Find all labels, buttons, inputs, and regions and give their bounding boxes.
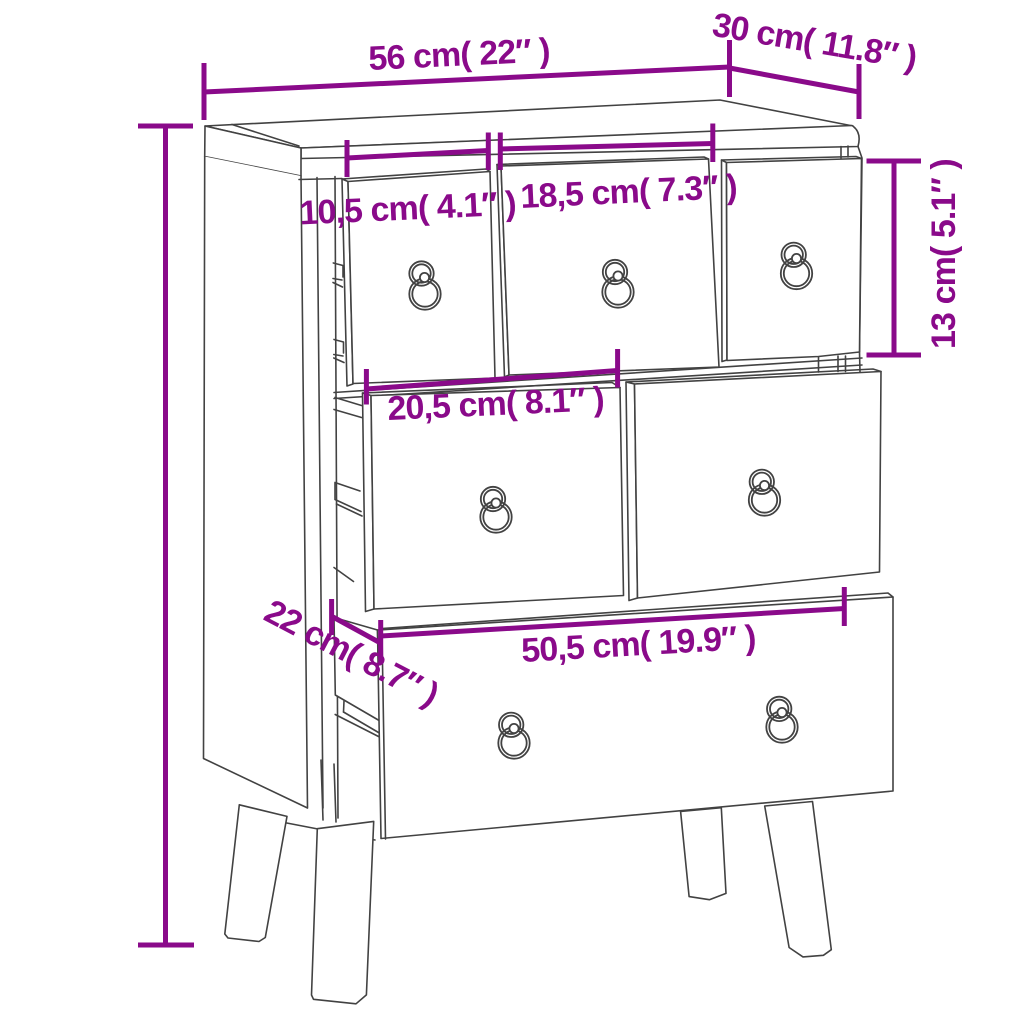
svg-text:13 cm( 5.1″ ): 13 cm( 5.1″ ): [925, 159, 963, 349]
